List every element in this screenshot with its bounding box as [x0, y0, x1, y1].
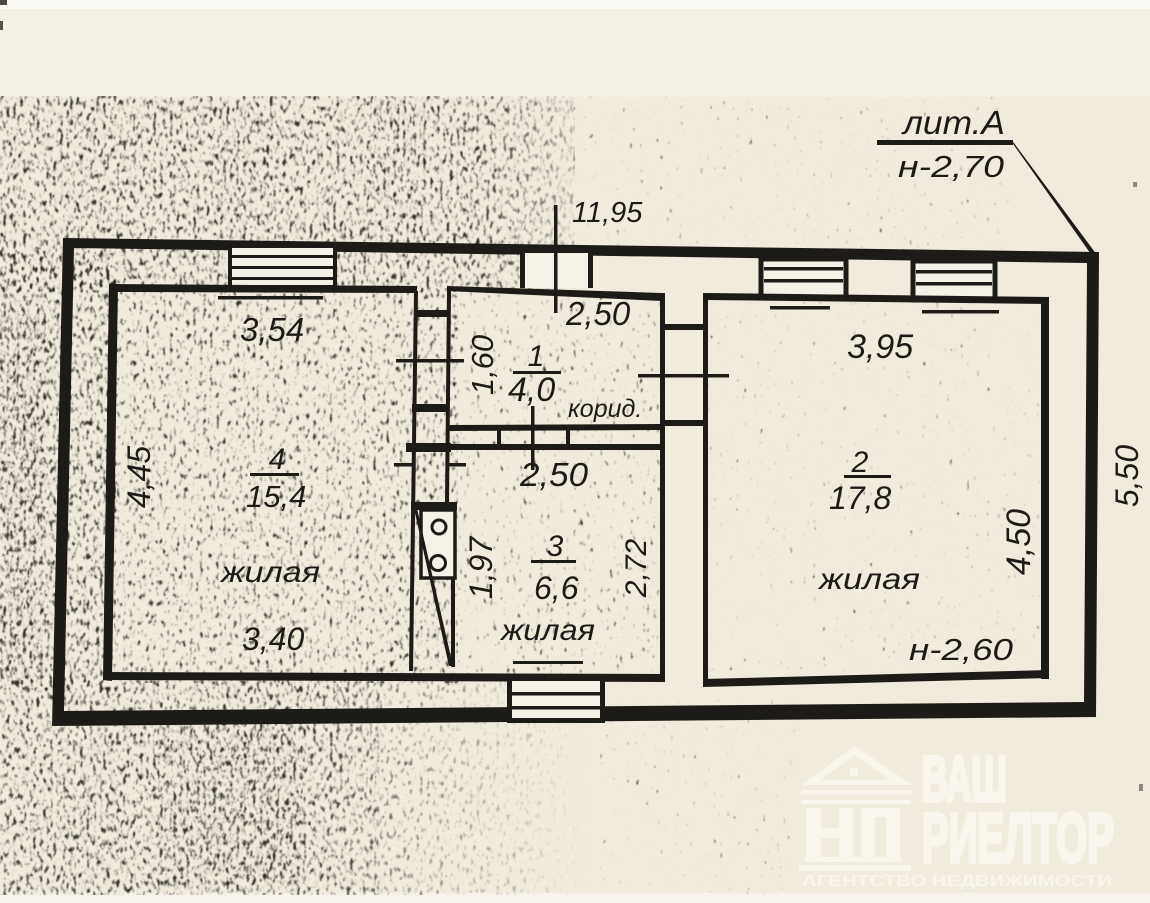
svg-text:РИЕЛТОР: РИЕЛТОР: [922, 799, 1114, 877]
svg-text:лит.А: лит.А: [901, 104, 1005, 141]
svg-text:4,50: 4,50: [1000, 509, 1038, 575]
svg-text:2,50: 2,50: [565, 295, 631, 332]
svg-text:3,40: 3,40: [242, 621, 304, 657]
svg-text:3: 3: [547, 530, 564, 563]
svg-text:1: 1: [528, 340, 545, 373]
svg-text:4: 4: [269, 443, 286, 476]
svg-text:3,95: 3,95: [847, 328, 913, 366]
svg-text:жилая: жилая: [499, 614, 595, 647]
svg-text:1,60: 1,60: [465, 335, 500, 395]
svg-text:5,50: 5,50: [1109, 445, 1145, 507]
svg-text:4,45: 4,45: [121, 446, 157, 508]
svg-text:2,72: 2,72: [620, 538, 653, 598]
svg-text:корид.: корид.: [568, 395, 642, 423]
svg-text:АГЕНТСТВО НЕДВИЖИМОСТИ: АГЕНТСТВО НЕДВИЖИМОСТИ: [802, 873, 1112, 890]
svg-text:4,0: 4,0: [508, 371, 555, 409]
svg-text:17,8: 17,8: [829, 480, 891, 516]
svg-text:жилая: жилая: [817, 563, 920, 596]
svg-text:н-2,60: н-2,60: [909, 632, 1013, 667]
svg-text:11,95: 11,95: [572, 197, 643, 229]
svg-text:1,97: 1,97: [463, 536, 499, 599]
svg-text:н-2,70: н-2,70: [898, 149, 1004, 184]
svg-text:6,6: 6,6: [534, 570, 579, 606]
svg-text:жилая: жилая: [219, 556, 320, 589]
svg-text:15,4: 15,4: [246, 479, 306, 514]
svg-text:3,54: 3,54: [240, 311, 304, 348]
svg-text:2: 2: [851, 446, 869, 479]
svg-text:2,50: 2,50: [519, 456, 589, 493]
